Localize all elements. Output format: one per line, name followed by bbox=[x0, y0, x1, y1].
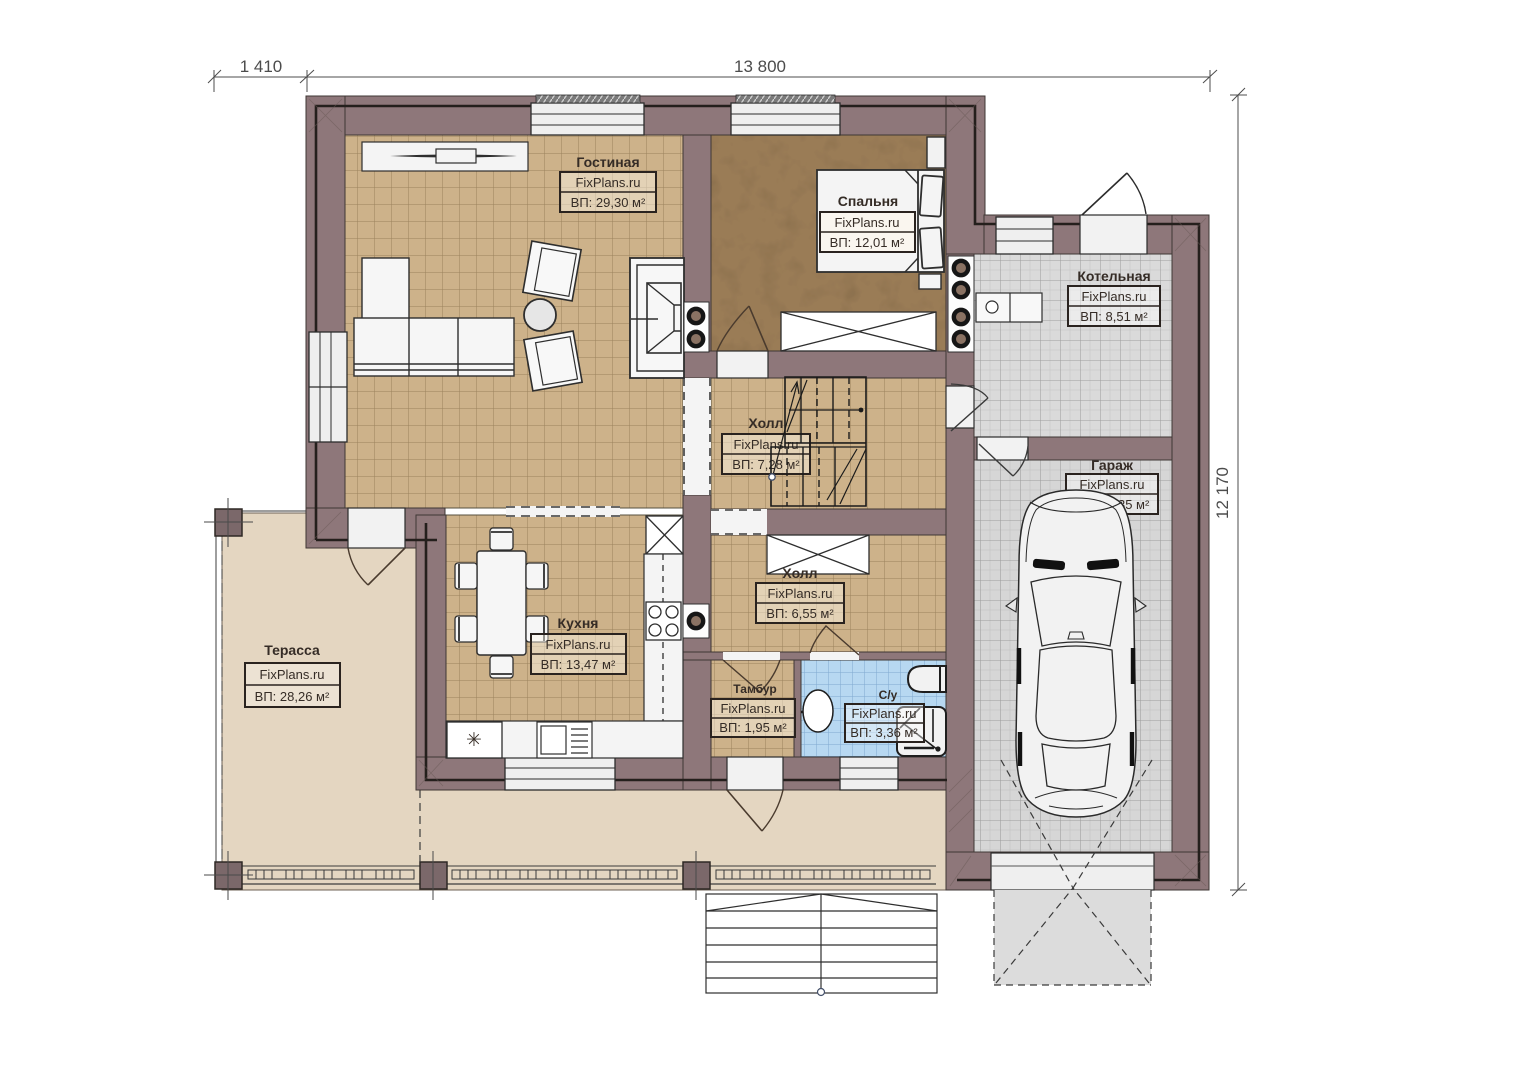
svg-text:FixPlans.ru: FixPlans.ru bbox=[1081, 289, 1146, 304]
svg-text:ВП: 6,55 м²: ВП: 6,55 м² bbox=[766, 606, 834, 621]
svg-text:Котельная: Котельная bbox=[1077, 268, 1150, 284]
svg-text:ВП: 12,01 м²: ВП: 12,01 м² bbox=[830, 235, 905, 250]
svg-text:ВП: 8,51 м²: ВП: 8,51 м² bbox=[1080, 309, 1148, 324]
svg-text:Холл: Холл bbox=[748, 415, 783, 431]
svg-text:Кухня: Кухня bbox=[558, 615, 599, 631]
svg-text:✳: ✳ bbox=[466, 730, 482, 751]
svg-text:FixPlans.ru: FixPlans.ru bbox=[733, 437, 798, 452]
svg-text:С/у: С/у bbox=[879, 688, 898, 702]
svg-text:FixPlans.ru: FixPlans.ru bbox=[545, 637, 610, 652]
svg-text:FixPlans.ru: FixPlans.ru bbox=[851, 706, 916, 721]
svg-text:ВП: 3,36 м²: ВП: 3,36 м² bbox=[850, 725, 918, 740]
svg-text:ВП: 29,30 м²: ВП: 29,30 м² bbox=[571, 195, 646, 210]
svg-text:Спальня: Спальня bbox=[838, 193, 898, 209]
svg-text:ВП: 28,26 м²: ВП: 28,26 м² bbox=[255, 689, 330, 704]
svg-text:FixPlans.ru: FixPlans.ru bbox=[1079, 477, 1144, 492]
svg-text:FixPlans.ru: FixPlans.ru bbox=[259, 667, 324, 682]
svg-text:13 800: 13 800 bbox=[734, 57, 786, 76]
svg-text:Гостиная: Гостиная bbox=[576, 154, 639, 170]
svg-text:ВП: 7,28 м²: ВП: 7,28 м² bbox=[732, 457, 800, 472]
svg-text:12 170: 12 170 bbox=[1213, 467, 1232, 519]
svg-text:FixPlans.ru: FixPlans.ru bbox=[720, 701, 785, 716]
svg-text:FixPlans.ru: FixPlans.ru bbox=[575, 175, 640, 190]
svg-text:Гараж: Гараж bbox=[1091, 457, 1134, 473]
svg-text:Холл: Холл bbox=[782, 565, 817, 581]
svg-text:ВП: 1,95 м²: ВП: 1,95 м² bbox=[719, 720, 787, 735]
svg-text:1 410: 1 410 bbox=[240, 57, 283, 76]
svg-text:Тамбур: Тамбур bbox=[733, 682, 777, 696]
svg-text:FixPlans.ru: FixPlans.ru bbox=[834, 215, 899, 230]
svg-text:FixPlans.ru: FixPlans.ru bbox=[767, 586, 832, 601]
svg-text:Терасса: Терасса bbox=[264, 642, 320, 658]
svg-text:ВП: 13,47 м²: ВП: 13,47 м² bbox=[541, 657, 616, 672]
